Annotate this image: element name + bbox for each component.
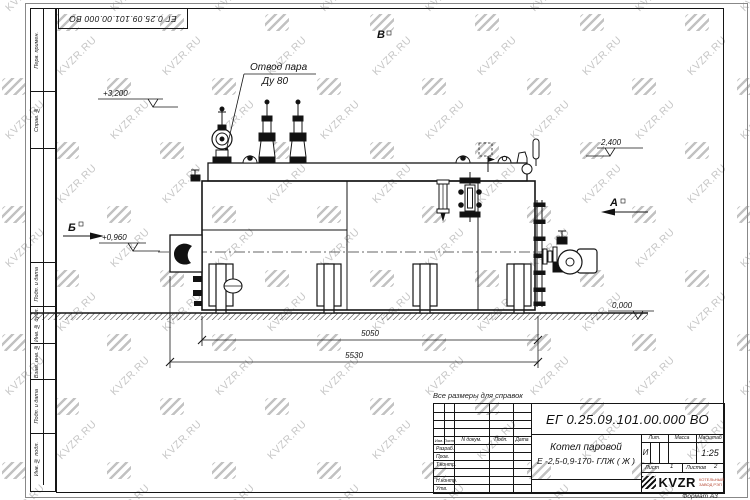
scale-value: 1:25 — [696, 442, 724, 463]
format-label: Формат А3 — [640, 493, 750, 500]
kvzr-logo-icon — [641, 476, 656, 489]
col-data: Дата — [513, 436, 531, 444]
lit-label: Лит. — [641, 434, 668, 442]
top-left-designation-stamp: ЕГ 0.25.09.101.00.000 ВО — [58, 8, 188, 29]
sheets-value: 2 — [714, 464, 717, 470]
sheets-label: Листов — [686, 465, 706, 471]
margin-cell: Подп. и дата — [31, 263, 44, 306]
row-prov: Пров. — [436, 454, 449, 460]
product-model: Е -2,5-0,9-170- ГЛЖ ( Ж ) — [531, 455, 641, 467]
scale-label: Масштаб — [696, 434, 724, 442]
margin-cell: Инв. № дубл. — [31, 307, 44, 343]
margin-cell: Перв. примен. — [31, 9, 44, 91]
kvzr-logo-word: KVZR — [659, 475, 696, 490]
row-tkontr: Т.контр. — [436, 462, 456, 468]
margin-cell: Справ. № — [31, 92, 44, 148]
reference-note: Все размеры для справок — [433, 391, 523, 400]
sheet-value: 1 — [670, 464, 673, 470]
col-podp: Подп. — [489, 436, 513, 444]
kvzr-logo-subtext: КОТЕЛЬНЫЙ ЗАВОД РЭП — [699, 478, 724, 487]
row-nkontr: Н.контр. — [436, 478, 457, 484]
lit-value: И — [641, 442, 650, 463]
company-logo-cell: KVZR КОТЕЛЬНЫЙ ЗАВОД РЭП — [641, 472, 724, 493]
sheet-label: Лист — [645, 465, 659, 471]
left-margin-columns: Перв. примен. Справ. № Подп. и дата Инв.… — [30, 8, 56, 492]
col-list: Лист — [444, 436, 454, 444]
margin-cell: Инв. № подл. — [31, 434, 44, 485]
product-name: Котел паровой — [531, 440, 641, 454]
title-block: Изм. Лист N докум. Подп. Дата Разраб. Пр… — [433, 403, 725, 494]
margin-cell: Взам. инв. № — [31, 344, 44, 379]
drawing-sheet: KVZR.RUKVZR.RUKVZR.RUKVZR.RUKVZR.RUKVZR.… — [0, 0, 750, 500]
col-ndokum: N докум. — [454, 436, 489, 444]
document-designation: ЕГ 0.25.09.101.00.000 ВО — [531, 404, 724, 434]
mass-label: Масса — [668, 434, 696, 442]
margin-cell: Подп. и дата — [31, 380, 44, 433]
row-razrab: Разраб. — [436, 446, 454, 452]
margin-cell — [31, 149, 44, 262]
designation-rotated: ЕГ 0.25.09.101.00.000 ВО — [69, 14, 177, 24]
row-utv: Утв. — [436, 486, 447, 492]
col-izm: Изм. — [434, 436, 444, 444]
